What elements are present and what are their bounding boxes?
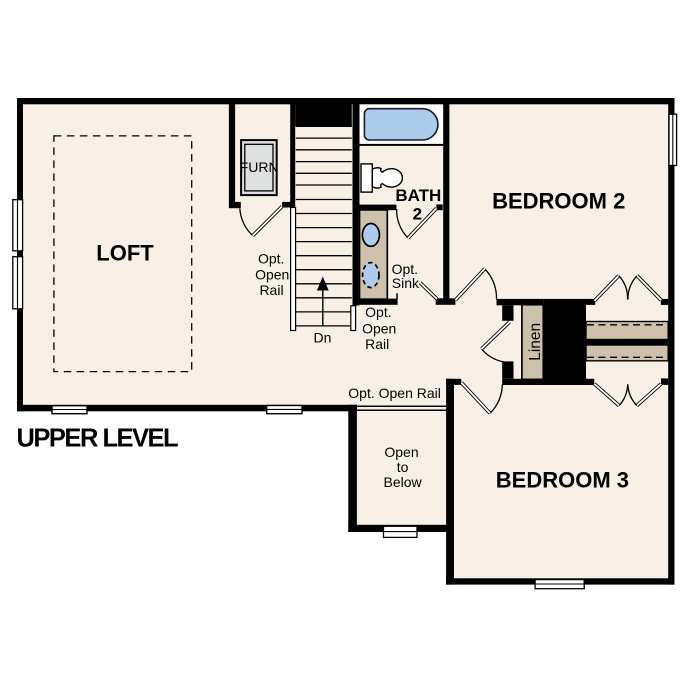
- svg-text:BEDROOM 2: BEDROOM 2: [492, 188, 625, 213]
- svg-text:Below: Below: [384, 474, 423, 490]
- svg-text:2: 2: [413, 204, 422, 223]
- svg-text:Open: Open: [255, 267, 289, 283]
- svg-text:Open: Open: [362, 321, 396, 337]
- svg-text:to: to: [397, 459, 409, 475]
- svg-text:Opt.: Opt.: [365, 304, 391, 320]
- svg-text:FURN: FURN: [240, 159, 279, 175]
- svg-text:LOFT: LOFT: [96, 241, 154, 266]
- svg-text:Linen: Linen: [527, 323, 544, 361]
- svg-text:BATH: BATH: [395, 186, 441, 205]
- svg-text:Rail: Rail: [259, 282, 283, 298]
- svg-text:Rail: Rail: [365, 336, 389, 352]
- svg-text:BEDROOM 3: BEDROOM 3: [496, 467, 629, 492]
- svg-text:UPPER LEVEL: UPPER LEVEL: [17, 424, 179, 452]
- svg-text:Opt.: Opt.: [258, 251, 284, 267]
- svg-text:Opt. Open Rail: Opt. Open Rail: [348, 385, 441, 401]
- svg-text:Sink: Sink: [392, 275, 420, 291]
- svg-text:Open: Open: [384, 444, 418, 460]
- svg-text:Dn: Dn: [314, 330, 332, 346]
